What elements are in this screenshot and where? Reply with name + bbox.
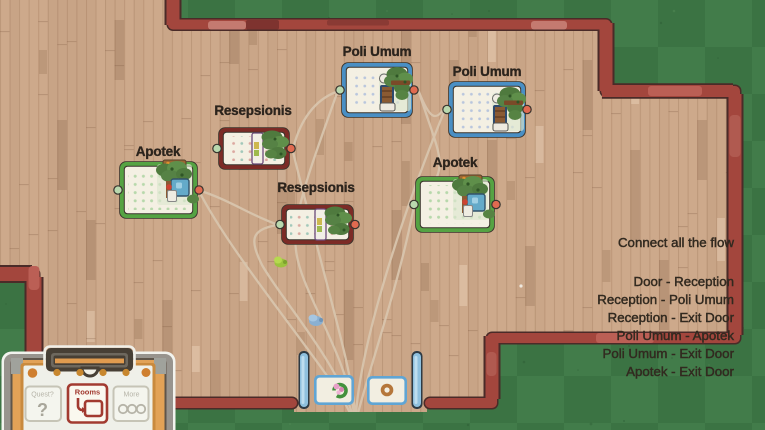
svg-text:Apotek: Apotek [136, 144, 181, 159]
svg-text:Poli Umum - Apotek: Poli Umum - Apotek [617, 328, 735, 343]
svg-text:More: More [124, 392, 140, 399]
svg-text:Apotek: Apotek [433, 155, 478, 170]
svg-text:Poli Umum: Poli Umum [343, 44, 412, 59]
svg-text:?: ? [37, 400, 48, 420]
svg-text:Reception - Exit Door: Reception - Exit Door [608, 310, 735, 325]
svg-text:Quest?: Quest? [31, 392, 54, 399]
svg-text:Poli Umum - Exit Door: Poli Umum - Exit Door [602, 346, 734, 361]
svg-text:Connect all the flow: Connect all the flow [618, 235, 734, 250]
svg-text:Apotek - Exit Door: Apotek - Exit Door [626, 364, 734, 379]
svg-text:Poli Umum: Poli Umum [453, 64, 522, 79]
svg-text:Door - Reception: Door - Reception [633, 274, 734, 289]
svg-text:Resepsionis: Resepsionis [277, 180, 354, 195]
svg-text:Resepsionis: Resepsionis [214, 103, 291, 118]
svg-text:Reception - Poli Umum: Reception - Poli Umum [597, 292, 734, 307]
svg-text:Rooms: Rooms [75, 388, 100, 397]
